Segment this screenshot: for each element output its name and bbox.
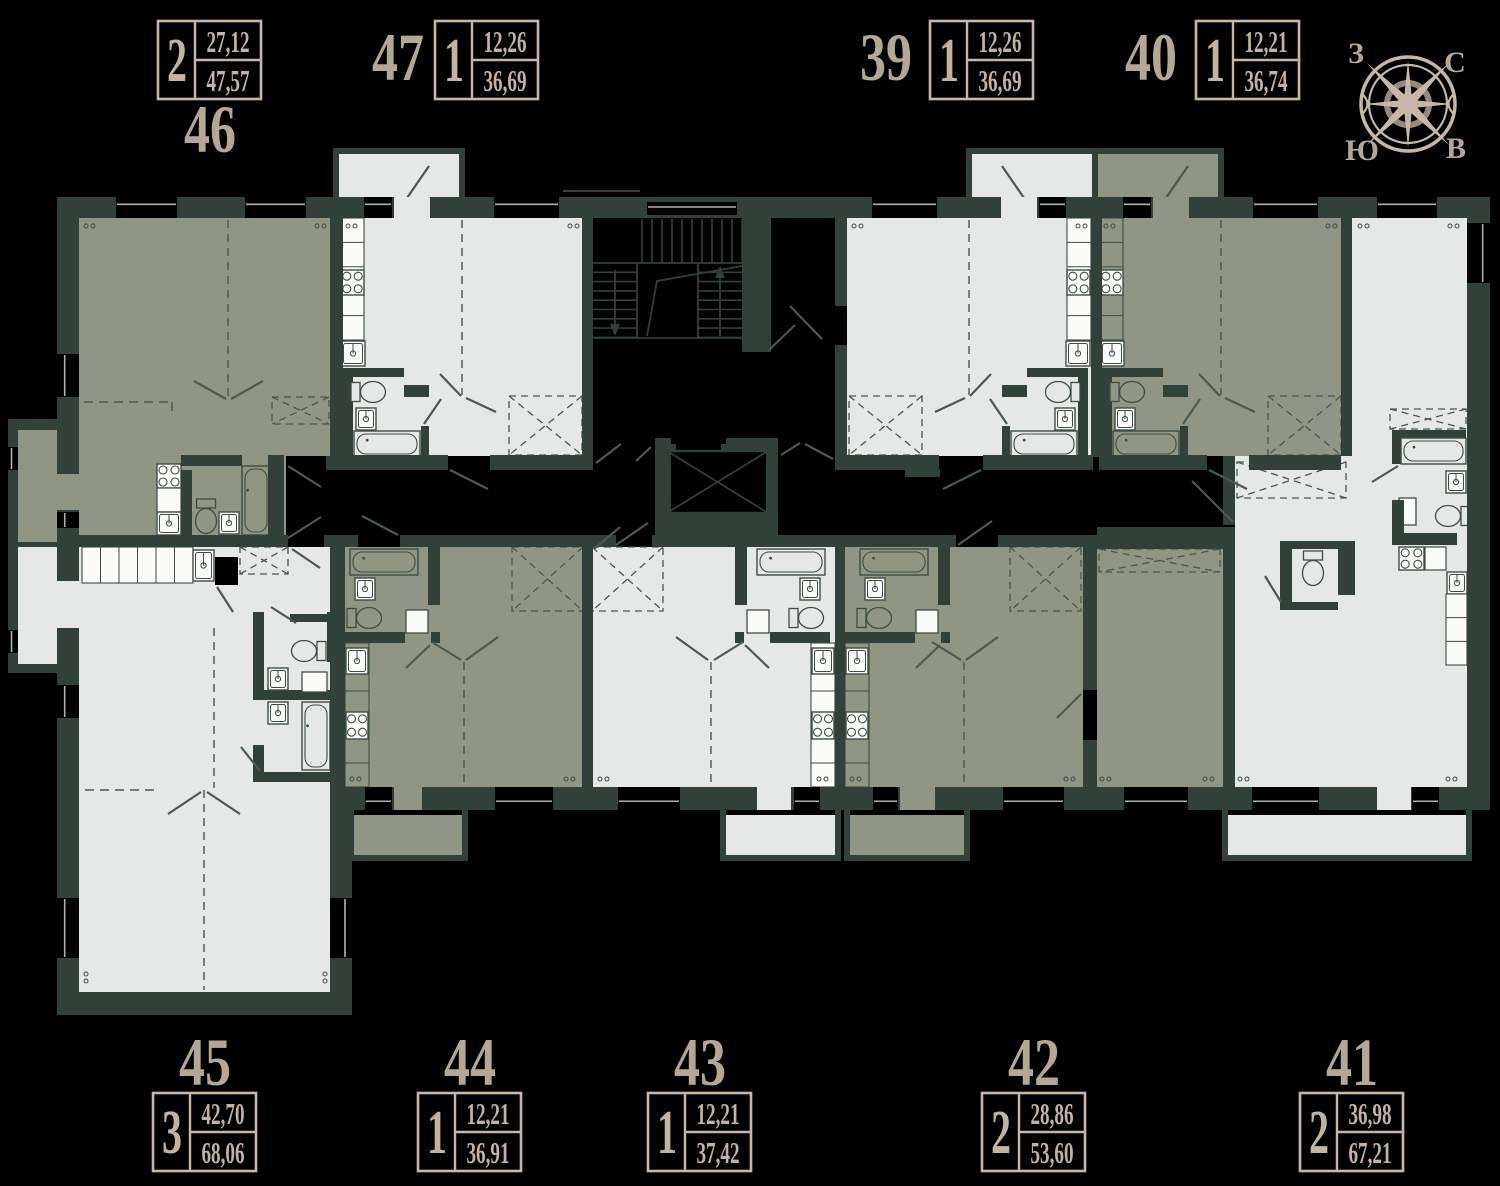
svg-text:47,57: 47,57	[207, 63, 250, 98]
svg-text:68,06: 68,06	[202, 1135, 245, 1170]
svg-text:39: 39	[860, 19, 912, 95]
svg-text:46: 46	[184, 91, 236, 167]
svg-text:67,21: 67,21	[1349, 1135, 1392, 1170]
svg-text:С: С	[1444, 46, 1466, 79]
svg-text:47: 47	[372, 19, 424, 95]
svg-text:37,42: 37,42	[697, 1135, 740, 1170]
svg-text:В: В	[1446, 132, 1466, 165]
svg-text:53,60: 53,60	[1031, 1135, 1074, 1170]
svg-text:45: 45	[179, 1024, 231, 1100]
svg-text:36,69: 36,69	[979, 63, 1022, 98]
svg-text:12,26: 12,26	[979, 24, 1022, 59]
svg-text:43: 43	[674, 1024, 726, 1100]
svg-text:2: 2	[991, 1099, 1011, 1167]
svg-text:42: 42	[1008, 1024, 1060, 1100]
svg-text:42,70: 42,70	[202, 1096, 245, 1131]
svg-text:12,21: 12,21	[697, 1096, 740, 1131]
svg-text:12,21: 12,21	[467, 1096, 510, 1131]
svg-text:36,91: 36,91	[467, 1135, 510, 1170]
svg-text:З: З	[1348, 37, 1364, 70]
svg-text:1: 1	[939, 27, 959, 95]
svg-text:1: 1	[1205, 27, 1225, 95]
svg-text:40: 40	[1125, 19, 1177, 95]
svg-text:44: 44	[444, 1024, 496, 1100]
svg-text:36,69: 36,69	[484, 63, 527, 98]
svg-text:1: 1	[444, 27, 464, 95]
svg-text:27,12: 27,12	[207, 24, 250, 59]
svg-text:12,26: 12,26	[484, 24, 527, 59]
svg-text:Ю: Ю	[1345, 134, 1379, 167]
svg-text:36,74: 36,74	[1245, 63, 1288, 98]
svg-text:1: 1	[427, 1099, 447, 1167]
svg-text:2: 2	[167, 27, 187, 95]
svg-text:36,98: 36,98	[1349, 1096, 1392, 1131]
svg-text:1: 1	[657, 1099, 677, 1167]
svg-text:28,86: 28,86	[1031, 1096, 1074, 1131]
svg-text:12,21: 12,21	[1245, 24, 1288, 59]
svg-text:2: 2	[1309, 1099, 1329, 1167]
svg-text:41: 41	[1326, 1024, 1378, 1100]
svg-text:3: 3	[162, 1099, 182, 1167]
